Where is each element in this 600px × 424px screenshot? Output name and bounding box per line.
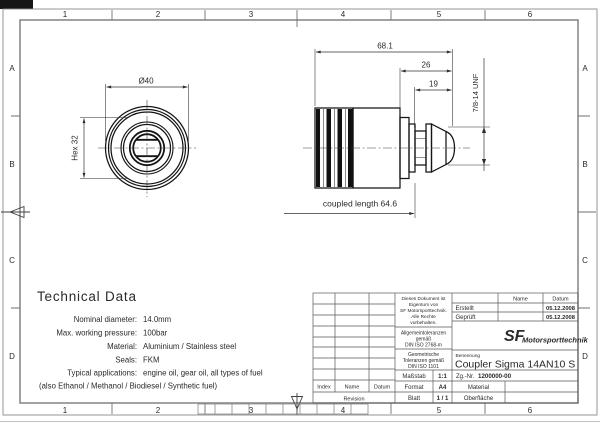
grid-col-label: 5 xyxy=(437,406,442,415)
title-block: Index Name Datum Revision Dieses Dokumen… xyxy=(313,293,589,403)
ownership-note-line: vorbehalten. xyxy=(410,320,436,326)
spec-value: FKM xyxy=(143,356,159,365)
grid-row-label: A xyxy=(9,64,15,73)
tolerance-column: Dieses Dokument ist Eigentum von SF Moto… xyxy=(395,296,452,403)
grid-row-label: B xyxy=(582,160,587,169)
drawing-sheet: 1 2 3 4 5 6 1 2 3 4 5 6 A B C D A B C D xyxy=(0,0,600,424)
coupled-length-label: coupled length 64.6 xyxy=(323,199,397,209)
grid-row-label: C xyxy=(9,256,15,265)
drawing-number: 1200000-00 xyxy=(478,373,512,380)
approval-column: Name Datum Erstellt 05.12.2008 Geprüft 0… xyxy=(452,293,589,403)
material-label: Material xyxy=(468,385,489,391)
grid-row-label: D xyxy=(9,352,15,361)
technical-drawing: 1 2 3 4 5 6 1 2 3 4 5 6 A B C D A B C D xyxy=(0,0,600,424)
outer-border xyxy=(3,9,597,415)
thread-spec-label: 7/8-14 UNF xyxy=(471,73,480,112)
name-column-header: Name xyxy=(513,297,528,303)
front-view: Ø40 Hex 32 xyxy=(71,77,197,198)
technical-data-block: Technical Data Nominal diameter: 14.0mm … xyxy=(37,289,263,391)
checked-date: 05.12.2008 xyxy=(546,315,576,321)
grid-col-label: 4 xyxy=(341,406,346,415)
grid-col-label: 5 xyxy=(437,10,442,19)
inner-frame xyxy=(20,20,578,403)
hex-label: Hex 32 xyxy=(71,135,80,161)
thread-length-label: 19 xyxy=(429,80,438,89)
spec-value: 100bar xyxy=(143,329,168,338)
revision-date-header: Datum xyxy=(374,385,391,391)
grid-row-label: C xyxy=(582,256,588,265)
ownership-note-line: Eigentum von xyxy=(409,302,439,308)
spec-label: Material: xyxy=(107,342,137,351)
side-view: 68.1 26 19 7/8-14 UNF coupled length 64.… xyxy=(284,42,490,219)
date-column-header: Datum xyxy=(552,297,569,303)
part-designation: Coupler Sigma 14AN10 S xyxy=(455,359,575,371)
spec-value: Aluminium / Stainless steel xyxy=(143,342,236,351)
grid-col-label: 6 xyxy=(528,10,533,19)
revision-name-header: Name xyxy=(345,385,360,391)
technical-data-title: Technical Data xyxy=(37,289,137,304)
grid-ticks xyxy=(11,10,596,414)
created-label: Erstellt xyxy=(456,306,475,312)
grid-col-label: 6 xyxy=(528,406,533,415)
ownership-note-line: Alle Rechte xyxy=(411,314,436,320)
company-logo: SF Motorsporttechnik xyxy=(504,328,589,345)
revision-index-header: Index xyxy=(317,385,331,391)
corner-fold-mark xyxy=(0,0,33,9)
sheet-label: Blatt xyxy=(408,396,420,402)
step-length-label: 26 xyxy=(422,61,431,70)
dimension-26: 26 xyxy=(400,61,452,116)
format-value: A4 xyxy=(439,385,447,391)
revision-table: Index Name Datum Revision xyxy=(313,293,395,403)
geometric-tolerance-line: DIN ISO 1101 xyxy=(408,364,439,370)
scale-value: 1:1 xyxy=(438,374,447,380)
overall-length-label: 68.1 xyxy=(377,42,393,51)
grid-row-label: A xyxy=(582,64,588,73)
grid-labels: 1 2 3 4 5 6 1 2 3 4 5 6 A B C D A B C D xyxy=(9,10,588,415)
grid-col-label: 1 xyxy=(63,406,68,415)
grid-col-label: 4 xyxy=(341,10,346,19)
spec-label: Typical applications: xyxy=(67,369,137,378)
grid-row-label: B xyxy=(9,160,14,169)
grid-col-label: 2 xyxy=(156,10,161,19)
ownership-note-line: Dieses Dokument ist xyxy=(402,296,447,302)
spec-label: Seals: xyxy=(115,356,137,365)
ownership-note-line: SF Motorsporttechnik. xyxy=(400,308,447,314)
surface-label: Oberfläche xyxy=(464,396,494,402)
spec-label: Nominal diameter: xyxy=(74,315,137,324)
grid-col-label: 1 xyxy=(63,10,68,19)
front-centerlines xyxy=(98,100,196,197)
dimension-19: 19 xyxy=(415,80,452,129)
grid-col-label: 3 xyxy=(249,406,254,415)
spec-note: (also Ethanol / Methanol / Biodiesel / S… xyxy=(39,382,218,391)
drawing-number-label: Zg.-Nr. xyxy=(456,374,475,380)
grid-row-label: D xyxy=(582,352,588,361)
checked-label: Geprüft xyxy=(456,315,476,321)
revision-row-label: Revision xyxy=(343,397,364,403)
spec-label: Max. working pressure: xyxy=(56,329,137,338)
spec-value: engine oil, gear oil, all types of fuel xyxy=(143,369,263,378)
general-tolerance-line: DIN ISO 2768-m xyxy=(405,343,442,349)
created-date: 05.12.2008 xyxy=(546,306,576,312)
diameter-label: Ø40 xyxy=(138,77,154,86)
logo-company-name: Motorsporttechnik xyxy=(522,336,589,345)
spec-value: 14.0mm xyxy=(143,315,171,324)
sheet-value: 1 / 1 xyxy=(437,396,449,402)
grid-col-label: 3 xyxy=(249,10,254,19)
scale-label: Maßstab xyxy=(402,374,426,380)
format-label: Format xyxy=(404,385,423,391)
grid-col-label: 2 xyxy=(156,406,161,415)
